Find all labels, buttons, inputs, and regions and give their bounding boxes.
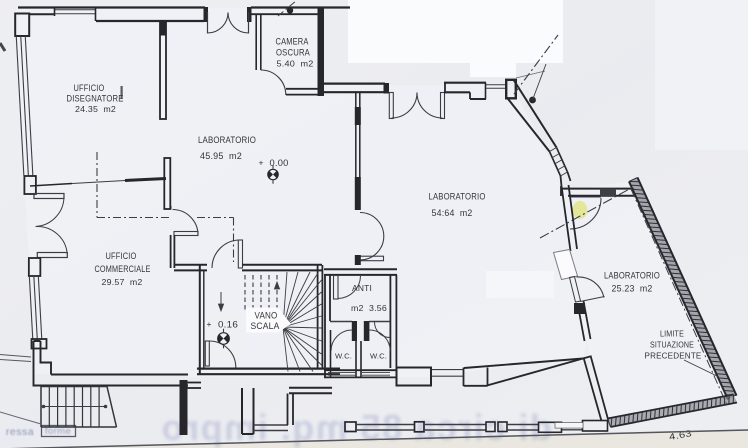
svg-text:LIMITE: LIMITE <box>660 329 684 339</box>
svg-text:5.40 m2: 5.40 m2 <box>277 59 314 69</box>
svg-text:LABORATORIO: LABORATORIO <box>198 135 256 145</box>
svg-text:25.23 m2: 25.23 m2 <box>612 284 653 294</box>
svg-text:UFFICIO: UFFICIO <box>106 251 137 261</box>
svg-text:W.C.: W.C. <box>370 352 387 361</box>
svg-text:PRECEDENTE: PRECEDENTE <box>645 351 702 361</box>
svg-text:W.C.: W.C. <box>335 352 352 361</box>
svg-text:ANTI: ANTI <box>352 284 372 293</box>
svg-text:m2 3.56: m2 3.56 <box>351 304 387 313</box>
svg-text:LABORATORIO: LABORATORIO <box>429 192 486 202</box>
svg-text:0.16: 0.16 <box>218 320 238 330</box>
svg-text:COMMERCIALE: COMMERCIALE <box>95 264 151 274</box>
svg-text:0.00: 0.00 <box>270 158 289 168</box>
svg-text:SCALA: SCALA <box>251 321 280 331</box>
svg-text:OSCURA: OSCURA <box>276 48 310 58</box>
svg-text:SITUAZIONE: SITUAZIONE <box>650 340 694 350</box>
svg-text:CAMERA: CAMERA <box>276 37 309 47</box>
svg-text:45.95 m2: 45.95 m2 <box>200 151 242 161</box>
svg-text:+: + <box>207 319 212 329</box>
svg-text:24.35 m2: 24.35 m2 <box>75 104 116 114</box>
svg-text:UFFICIO: UFFICIO <box>74 83 105 93</box>
svg-text:LABORATORIO: LABORATORIO <box>604 271 660 281</box>
svg-text:54:64 m2: 54:64 m2 <box>432 208 473 218</box>
svg-text:VANO: VANO <box>255 311 278 321</box>
svg-text:+: + <box>259 158 264 168</box>
svg-text:DISEGNATORE: DISEGNATORE <box>67 94 124 104</box>
svg-text:29.57 m2: 29.57 m2 <box>102 277 143 287</box>
svg-text:ressa: ressa <box>6 426 34 438</box>
